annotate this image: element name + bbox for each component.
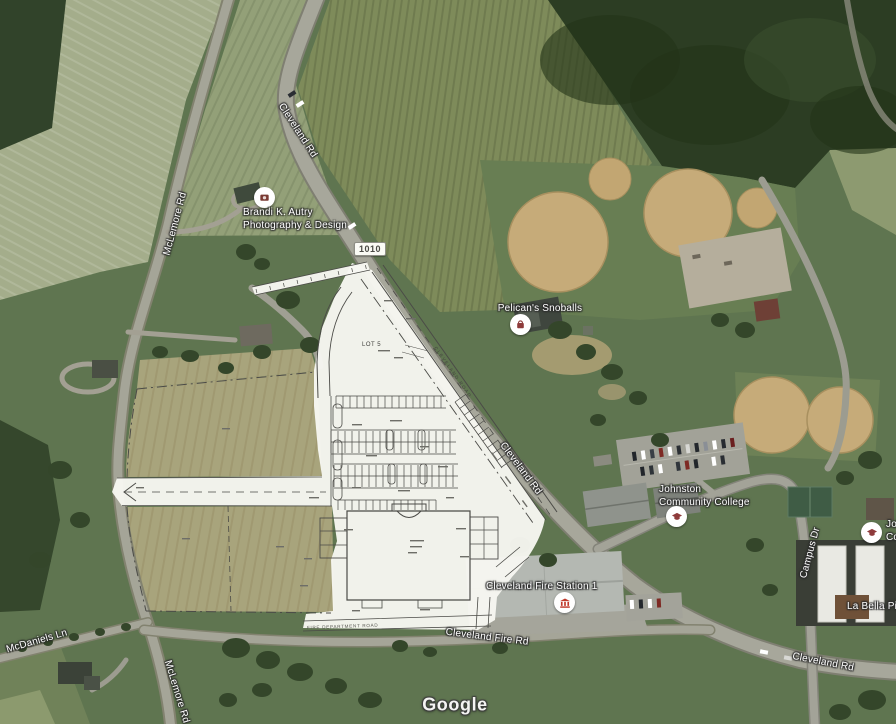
poi-label-johnston-cc[interactable]: Johnston Community College [659, 484, 750, 509]
poi-label-fire-station[interactable]: Cleveland Fire Station 1 [486, 581, 598, 594]
shop-icon[interactable] [510, 314, 531, 335]
school-icon[interactable] [666, 506, 687, 527]
poi-label-line: Johnston [659, 484, 750, 497]
poi-label-line: Pelican's Snoballs [498, 303, 582, 314]
route-shield-1010: 1010 [354, 242, 386, 256]
poi-label-pelicans-snoballs[interactable]: Pelican's Snoballs [498, 303, 582, 316]
poi-label-line: Photography & Design [243, 220, 347, 233]
institution-icon[interactable] [554, 592, 575, 613]
poi-label-line: Johnston [886, 519, 896, 532]
map-viewport[interactable]: LOT 5 CLEVELAND ROAD FIRE DEPARTMENT ROA… [0, 0, 896, 724]
poi-label-la-bella-pizza[interactable]: La Bella Pizza [847, 601, 896, 614]
google-watermark[interactable]: Google [422, 695, 488, 716]
poi-label-line: Brandi K. Autry [243, 207, 347, 220]
poi-label-johnston-college-edge[interactable]: Johnston College [886, 519, 896, 544]
poi-label-line: Cleveland Fire Station 1 [486, 581, 598, 592]
satellite-imagery: LOT 5 CLEVELAND ROAD FIRE DEPARTMENT ROA… [0, 0, 896, 724]
poi-label-line: College [886, 532, 896, 545]
plan-lot-label: LOT 5 [362, 342, 381, 348]
school-icon[interactable] [861, 522, 882, 543]
camera-icon[interactable] [254, 187, 275, 208]
poi-label-line: La Bella Pizza [847, 601, 896, 612]
poi-label-brandi-autry[interactable]: Brandi K. Autry Photography & Design [243, 207, 347, 232]
